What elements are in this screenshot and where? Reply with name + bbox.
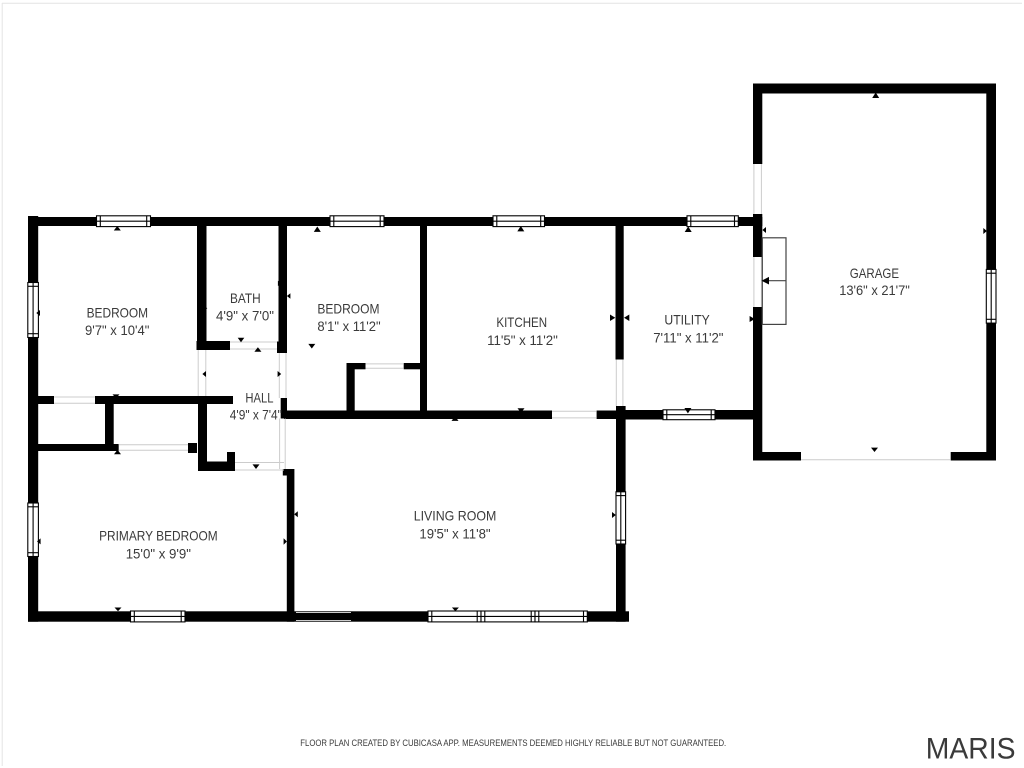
svg-text:MARIS: MARIS [926,732,1016,765]
svg-text:15'0" x 9'9": 15'0" x 9'9" [126,547,191,562]
svg-text:BEDROOM: BEDROOM [87,306,148,321]
svg-text:8'1" x 11'2": 8'1" x 11'2" [317,319,380,334]
svg-text:PRIMARY BEDROOM: PRIMARY BEDROOM [99,529,218,544]
svg-text:HALL: HALL [245,391,273,406]
svg-text:LIVING ROOM: LIVING ROOM [414,508,497,523]
svg-text:11'5" x 11'2": 11'5" x 11'2" [487,333,558,348]
svg-text:KITCHEN: KITCHEN [496,315,547,330]
svg-text:BATH: BATH [230,291,261,306]
svg-text:19'5" x 11'8": 19'5" x 11'8" [419,527,490,542]
svg-text:BEDROOM: BEDROOM [317,302,379,317]
svg-text:GARAGE: GARAGE [850,266,899,281]
svg-text:13'6" x 21'7": 13'6" x 21'7" [839,283,910,298]
svg-text:4'9" x 7'0": 4'9" x 7'0" [216,309,274,324]
svg-text:7'11" x 11'2": 7'11" x 11'2" [653,331,723,346]
svg-text:UTILITY: UTILITY [664,312,709,327]
svg-text:FLOOR PLAN CREATED BY CUBICASA: FLOOR PLAN CREATED BY CUBICASA APP. MEAS… [300,738,726,748]
svg-text:4'9" x 7'4": 4'9" x 7'4" [230,408,282,423]
svg-text:9'7" x 10'4": 9'7" x 10'4" [85,323,149,338]
